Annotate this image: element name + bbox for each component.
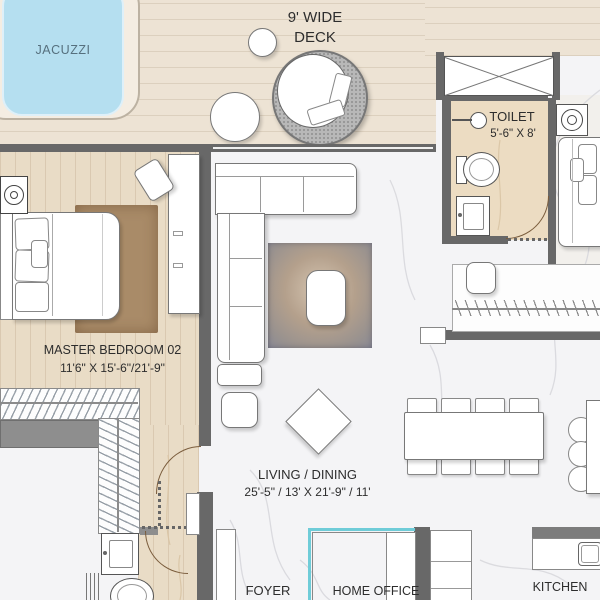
bedroom-door-leaf bbox=[186, 493, 200, 535]
second-bed-blanket-line bbox=[572, 139, 573, 243]
bed-blanket-edge bbox=[102, 214, 103, 316]
toilet-washbasin-tap bbox=[458, 213, 462, 217]
toilet-right-wall bbox=[548, 98, 556, 270]
shower-line-4 bbox=[98, 573, 99, 600]
deck-label-line2: DECK bbox=[270, 30, 360, 47]
living-pouf bbox=[221, 392, 258, 428]
toilet-wc-bowl bbox=[463, 152, 500, 187]
closet-rail-line-h bbox=[0, 402, 138, 404]
bath-vanity-counter bbox=[0, 420, 100, 448]
toilet-dims: 5'-6" X 8' bbox=[478, 128, 548, 141]
kitchen-counter bbox=[532, 538, 600, 570]
bath-washbasin-tap bbox=[103, 551, 107, 555]
sofa-vertical bbox=[217, 213, 265, 363]
toilet-washbasin bbox=[456, 196, 490, 236]
toilet-bottom-wall bbox=[442, 236, 508, 244]
shower-line-1 bbox=[86, 573, 87, 600]
master-bedroom-label: MASTER BEDROOM 02 bbox=[20, 344, 205, 358]
master-bedroom-dims: 11'6" X 15'-6"/21'-9" bbox=[20, 362, 205, 375]
dining-table bbox=[404, 412, 544, 460]
accent-chair-diamond bbox=[285, 388, 351, 454]
kitchen-shelf-divider-1 bbox=[431, 561, 471, 562]
bed-accent-pillow bbox=[31, 240, 48, 268]
sofa-side-table bbox=[217, 364, 262, 386]
living-dining-dims: 25'-5" / 13' X 21'-9" / 11' bbox=[215, 486, 400, 499]
bedroom-desk bbox=[168, 154, 200, 314]
desk-handle-1 bbox=[173, 231, 183, 236]
bath-door-threshold bbox=[142, 526, 186, 529]
towel-bar bbox=[452, 119, 472, 121]
toilet-left-wall bbox=[442, 98, 451, 244]
kitchen-sink-basin bbox=[581, 545, 599, 563]
toilet-washbasin-bowl bbox=[463, 203, 484, 230]
floor-plan: JACUZZI 9' WIDE DECK MASTER BEDROOM bbox=[0, 0, 600, 600]
office-glass-left bbox=[308, 528, 311, 600]
jacuzzi-label: JACUZZI bbox=[36, 44, 91, 58]
kitchen-island bbox=[586, 400, 600, 494]
bath-washbasin bbox=[101, 533, 139, 575]
closet2-stool bbox=[466, 262, 496, 294]
sofa-v-divider-1 bbox=[230, 258, 262, 259]
toilet-label: TOILET bbox=[480, 110, 544, 124]
kitchen-counter-edge bbox=[532, 527, 600, 538]
toilet-door-threshold bbox=[508, 238, 548, 241]
jacuzzi: JACUZZI bbox=[2, 0, 124, 116]
sofa-divider-2 bbox=[303, 177, 304, 212]
shower-line-2 bbox=[90, 573, 91, 600]
kitchen-shelf-divider-2 bbox=[431, 588, 471, 589]
sofa-back-line bbox=[216, 176, 354, 177]
foyer-label: FOYER bbox=[238, 584, 298, 598]
bath-wc-seat bbox=[117, 584, 147, 600]
office-glass-top bbox=[309, 528, 415, 531]
kitchen-label: KITCHEN bbox=[528, 581, 592, 595]
toilet-wc-seat bbox=[469, 158, 494, 181]
closet-rail-line-v bbox=[117, 418, 119, 532]
vestibule-dash bbox=[158, 478, 161, 526]
deck-label-line1: 9' WIDE bbox=[270, 10, 360, 27]
sofa-horizontal bbox=[215, 163, 357, 215]
closet-rail-horizontal bbox=[0, 388, 140, 420]
bath-washbasin-bowl bbox=[109, 540, 133, 568]
shower-line-3 bbox=[94, 573, 95, 600]
deck-pouf-large bbox=[210, 92, 260, 142]
bed-pillow-3 bbox=[15, 282, 49, 312]
sofa-v-back-line bbox=[229, 214, 230, 360]
sofa-divider-1 bbox=[260, 177, 261, 212]
bed-blanket-fold bbox=[52, 214, 53, 316]
deck-floor-right bbox=[425, 0, 600, 56]
living-window bbox=[213, 147, 433, 149]
wall-pier bbox=[420, 327, 446, 344]
bedroom-living-wall bbox=[199, 144, 211, 446]
desk-handle-2 bbox=[173, 263, 183, 268]
closet-rail-vertical bbox=[98, 418, 140, 534]
coffee-table bbox=[306, 270, 346, 326]
home-office-label: HOME OFFICE bbox=[330, 585, 422, 599]
ac-unit bbox=[0, 176, 28, 214]
ceiling-fan-hub bbox=[10, 191, 18, 199]
fan-box bbox=[556, 104, 588, 136]
kitchen-shelf bbox=[430, 530, 472, 600]
foyer-pier bbox=[216, 529, 236, 600]
closet2-rail-line bbox=[452, 308, 600, 310]
fan-icon-hub bbox=[567, 115, 577, 125]
kitchen-sink bbox=[578, 542, 600, 566]
service-shaft bbox=[444, 56, 554, 96]
sofa-v-divider-2 bbox=[230, 306, 262, 307]
living-dining-label: LIVING / DINING bbox=[230, 468, 385, 482]
